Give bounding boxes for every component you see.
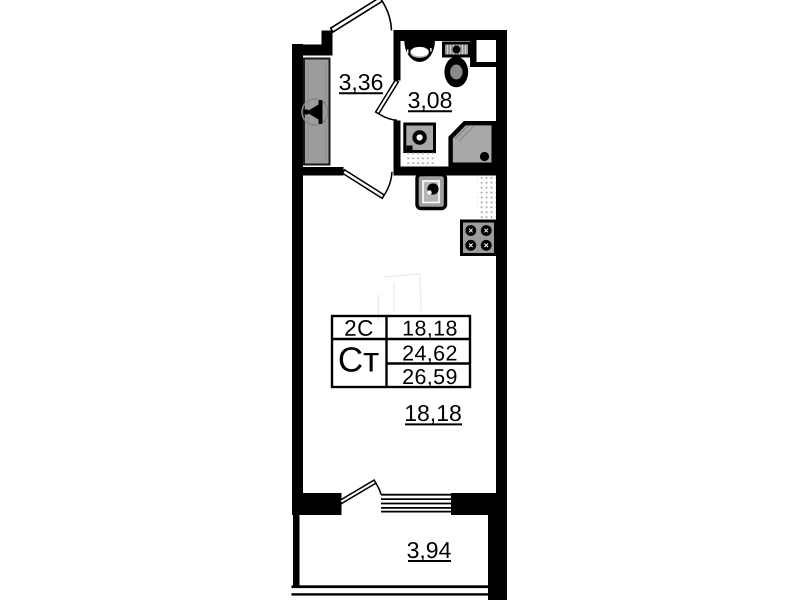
svg-text:24,62: 24,62 [402,341,458,365]
svg-text:3,08: 3,08 [408,87,453,113]
svg-text:Ст: Ст [338,340,379,379]
svg-text:2C: 2C [344,316,374,341]
svg-text:3,36: 3,36 [339,69,384,95]
svg-text:18,18: 18,18 [402,316,458,340]
svg-text:3,94: 3,94 [407,537,452,563]
svg-text:26,59: 26,59 [402,365,458,389]
svg-text:18,18: 18,18 [404,400,462,426]
